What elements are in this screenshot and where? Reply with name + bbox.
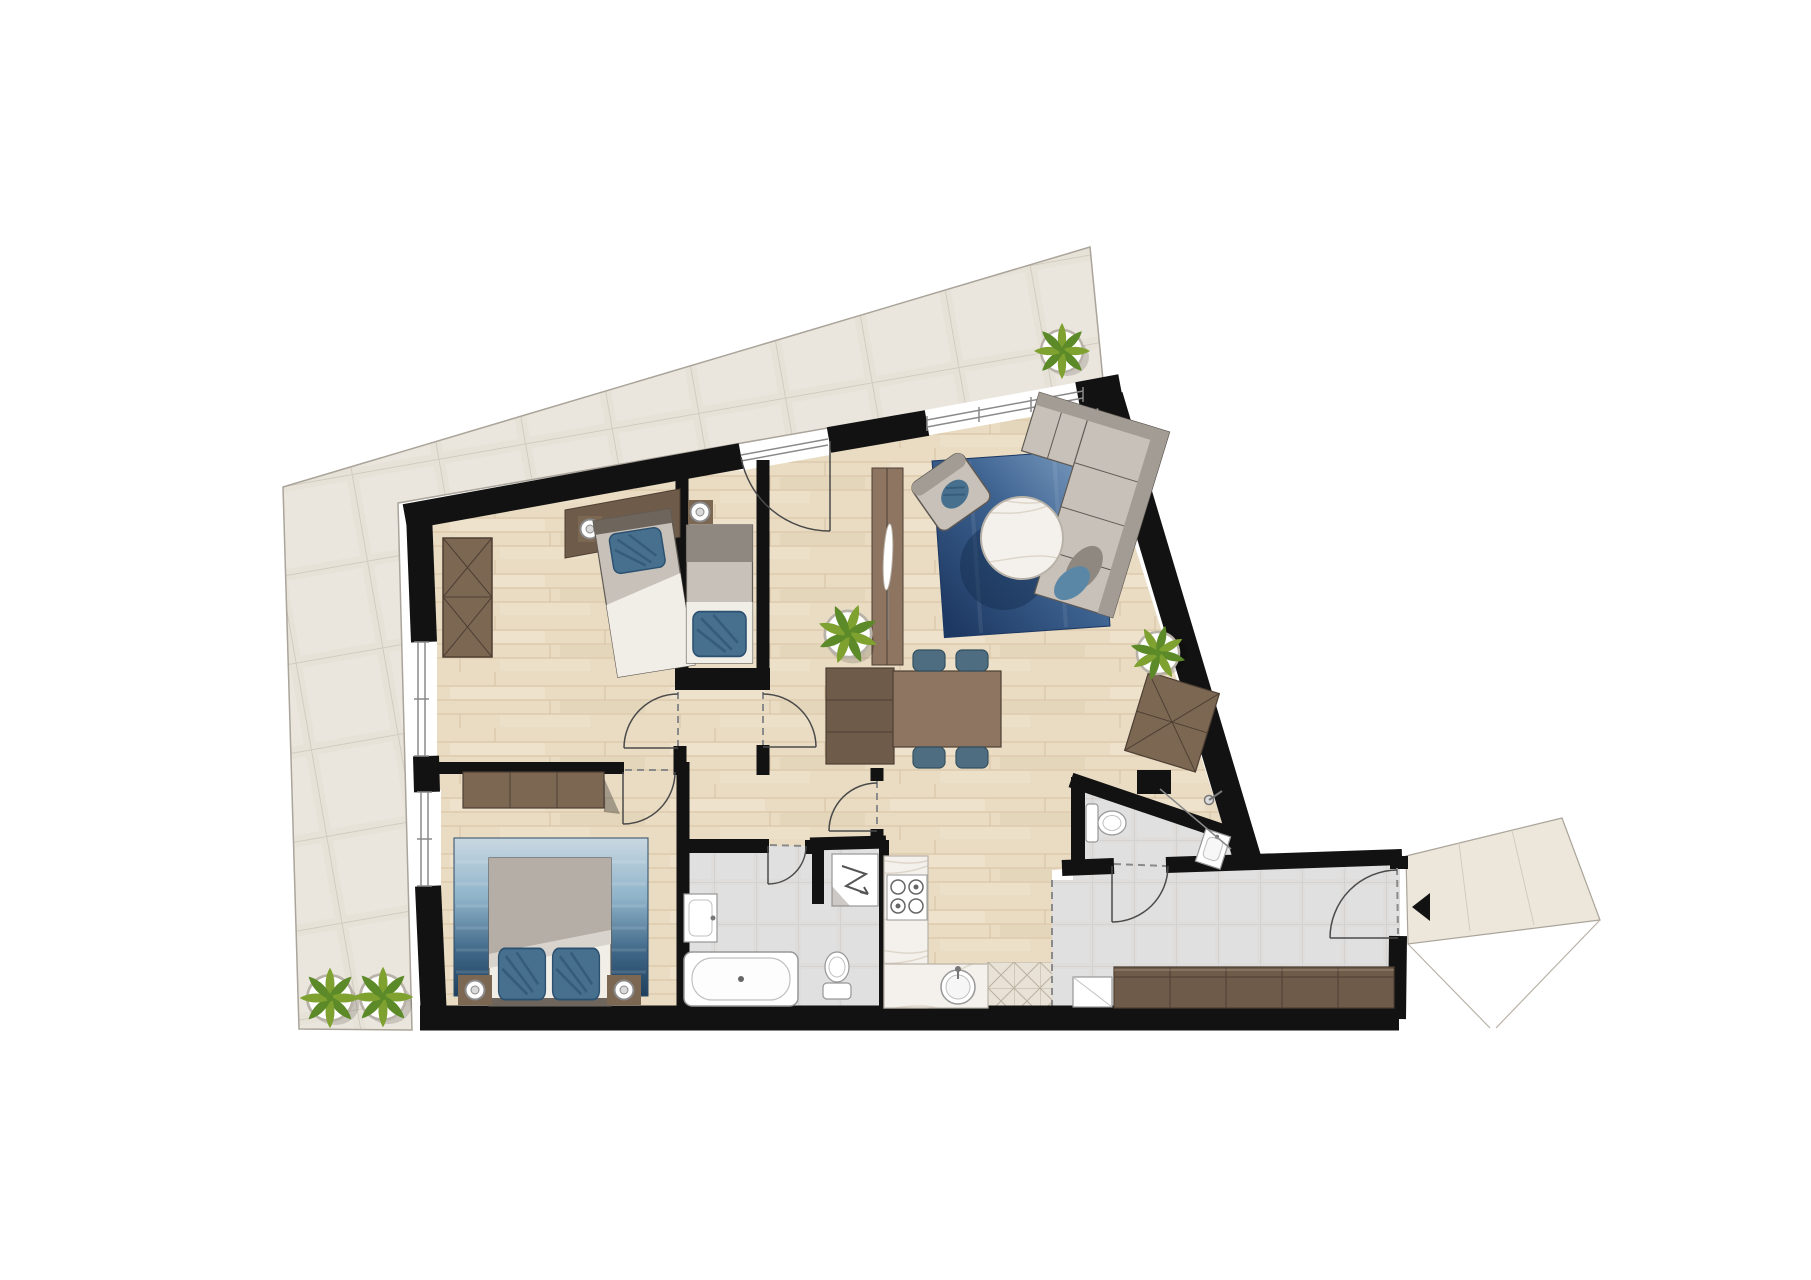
bathtub <box>684 952 798 1006</box>
coffee-table <box>981 497 1063 579</box>
kitchen-tile-patch <box>987 962 1052 1008</box>
plant-terrace-top <box>1034 323 1090 379</box>
bathroom-sink <box>684 894 717 942</box>
plant-terrace-bottom-1 <box>300 968 360 1028</box>
bedroom-3-bed <box>489 858 611 1006</box>
washing-machine <box>832 854 878 906</box>
landing-floor <box>1406 818 1600 944</box>
hall-white-cabinet <box>1073 977 1112 1007</box>
dining-chair <box>956 747 988 768</box>
bedroom-3-dresser <box>463 772 620 814</box>
floor-plan <box>0 0 1811 1280</box>
wc-duct <box>1137 770 1171 794</box>
hall-wardrobe <box>1114 967 1394 1008</box>
bedroom-2-bed <box>687 525 753 663</box>
bedroom-1-wardrobe <box>443 538 492 657</box>
entrance-landing <box>1406 818 1600 1028</box>
dining-chair <box>956 650 988 671</box>
wall-hall-top <box>1062 857 1402 868</box>
bedroom-3-lamp-right <box>615 981 634 1000</box>
wall-top-corridor <box>829 423 927 440</box>
bedroom-2 <box>687 500 753 663</box>
floor-plan-canvas <box>0 0 1811 1280</box>
bathroom-toilet <box>823 952 851 999</box>
cooktop <box>887 875 927 920</box>
dining-chair <box>913 747 945 768</box>
plant-terrace-bottom-2 <box>353 967 413 1027</box>
bedroom-2-lamp <box>691 503 710 522</box>
dining-sideboard <box>826 668 894 764</box>
divider-cabinet <box>872 468 903 665</box>
dining-table <box>893 671 1001 747</box>
dining-chair <box>913 650 945 671</box>
bedroom-3-lamp-left <box>466 981 485 1000</box>
